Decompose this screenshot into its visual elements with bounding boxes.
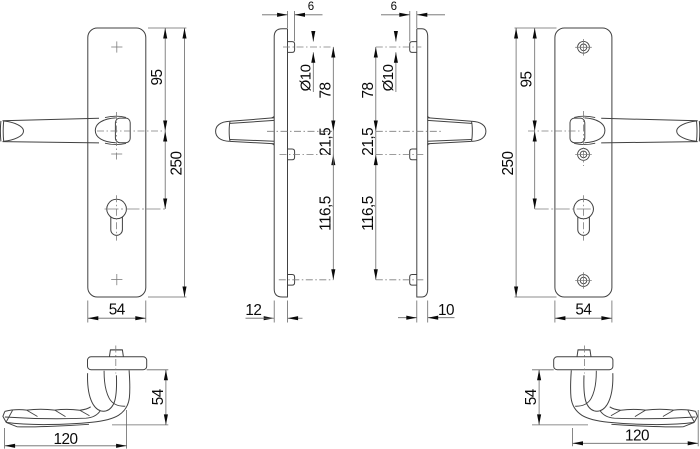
svg-text:54: 54: [109, 302, 126, 319]
svg-text:6: 6: [391, 1, 397, 13]
svg-text:Ø10: Ø10: [297, 64, 314, 91]
svg-text:120: 120: [625, 428, 649, 445]
svg-text:116,5: 116,5: [317, 196, 334, 231]
svg-text:54: 54: [150, 388, 167, 405]
svg-text:95: 95: [519, 71, 536, 87]
svg-text:250: 250: [169, 151, 186, 175]
svg-text:95: 95: [149, 69, 166, 85]
svg-text:78: 78: [360, 82, 377, 98]
svg-text:116,5: 116,5: [360, 196, 377, 231]
svg-text:10: 10: [438, 302, 454, 319]
svg-text:78: 78: [317, 82, 334, 98]
svg-text:21,5: 21,5: [317, 128, 334, 156]
svg-text:6: 6: [308, 1, 314, 13]
svg-text:54: 54: [523, 388, 540, 405]
svg-text:12: 12: [245, 302, 261, 319]
svg-text:21,5: 21,5: [360, 128, 377, 156]
svg-text:250: 250: [500, 151, 517, 175]
svg-text:120: 120: [53, 431, 77, 448]
svg-text:54: 54: [575, 302, 592, 319]
svg-text:Ø10: Ø10: [380, 64, 397, 91]
